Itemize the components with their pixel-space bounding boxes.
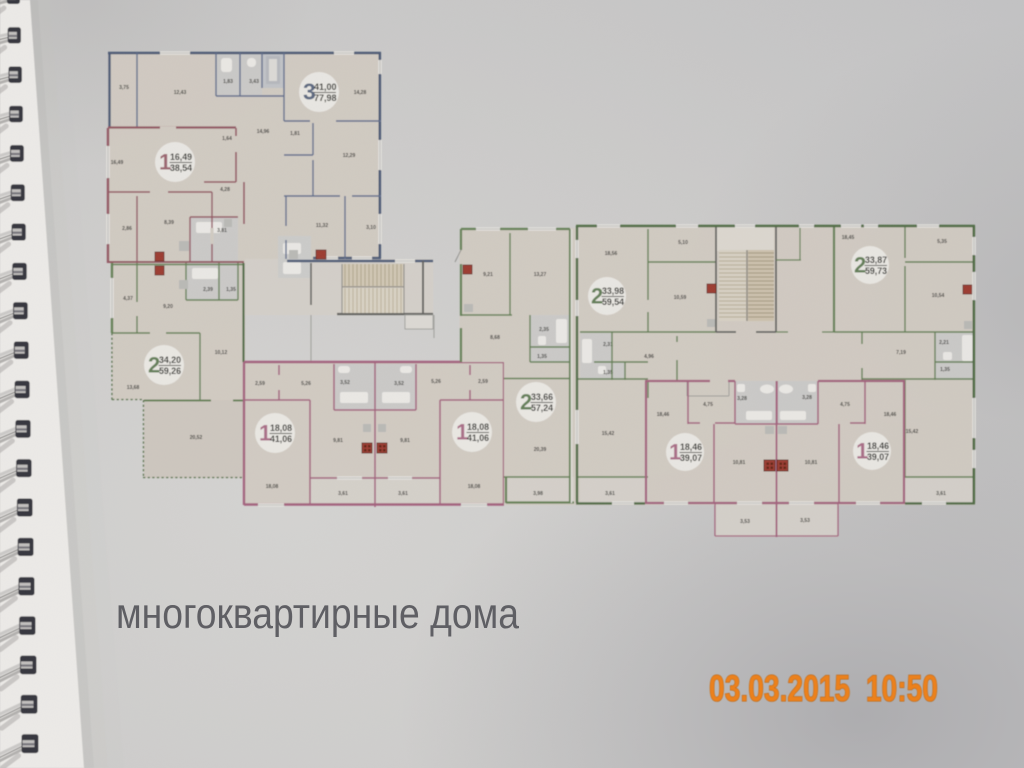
svg-text:03.03.2015 10:50: 03.03.2015 10:50 (709, 668, 938, 709)
svg-text:многоквартирные дома: многоквартирные дома (116, 590, 519, 638)
